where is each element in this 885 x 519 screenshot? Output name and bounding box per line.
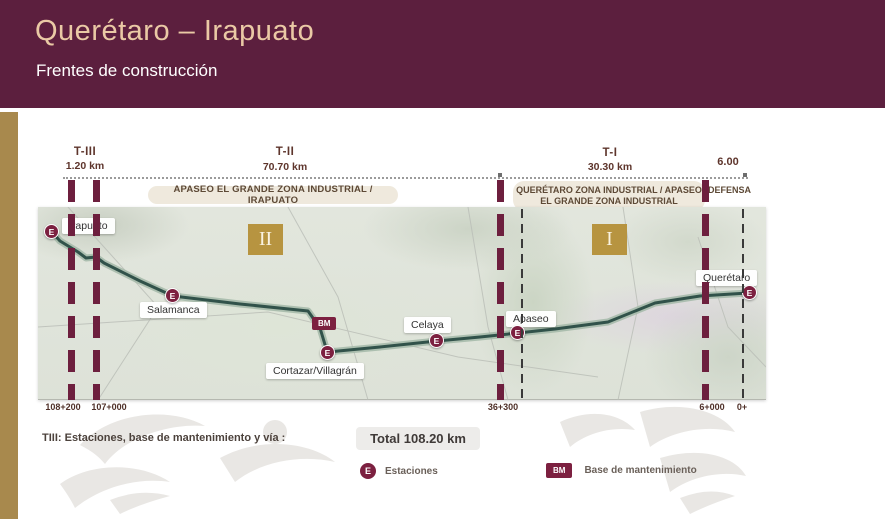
station-label-salamanca: Salamanca	[140, 302, 207, 318]
station-marker-celaya: E	[429, 333, 444, 348]
zone-label-text: QUERÉTARO ZONA INDUSTRIAL / APASEO	[513, 185, 705, 196]
station-marker-salamanca: E	[165, 288, 180, 303]
page-title: Querétaro – Irapuato	[35, 15, 314, 48]
zone-label-apaseo-irapuato: APASEO EL GRANDE ZONA INDUSTRIAL / IRAPU…	[148, 186, 398, 204]
station-label-cortazar: Cortazar/Villagrán	[266, 363, 364, 379]
section-t3-length: 1.20 km	[55, 160, 115, 172]
station-label-apaseo: Apaseo	[506, 311, 556, 327]
zone-label-text: EL GRANDE ZONA INDUSTRIAL	[513, 196, 705, 207]
station-marker-cortazar: E	[320, 345, 335, 360]
legend-label: Estaciones	[385, 466, 438, 477]
km-marker: 108+200	[38, 402, 88, 412]
section-boundary-dot	[498, 173, 502, 177]
legend-label: Base de mantenimiento	[584, 465, 696, 476]
section-t1-label: T-I	[570, 147, 650, 159]
zone-label-text: APASEO EL GRANDE ZONA INDUSTRIAL / IRAPU…	[148, 184, 398, 206]
maintenance-base-badge: BM	[312, 317, 336, 330]
legend-base-mantenimiento: BM Base de mantenimiento	[546, 463, 697, 478]
section-t2-label: T-II	[245, 146, 325, 158]
km-marker: 107+000	[84, 402, 134, 412]
header-banner: Querétaro – Irapuato Frentes de construc…	[0, 0, 885, 108]
legend-estaciones: E Estaciones	[360, 463, 438, 479]
station-label-celaya: Celaya	[404, 317, 451, 333]
rail-route-halo	[52, 232, 748, 352]
zone-boundary-dashed-line	[521, 209, 523, 400]
km-marker: 0+	[727, 402, 757, 412]
route-map: Irapuato Salamanca Cortazar/Villagrán Ce…	[38, 207, 766, 400]
slide: Querétaro – Irapuato Frentes de construc…	[0, 0, 885, 519]
total-length-badge: Total 108.20 km	[356, 427, 480, 450]
maintenance-legend-icon: BM	[546, 463, 572, 478]
section-dotted-line	[63, 177, 748, 179]
station-marker-queretaro: E	[742, 285, 757, 300]
divider-km-107-000	[93, 180, 100, 400]
front-badge-1: I	[592, 224, 627, 255]
section-t2-length: 70.70 km	[245, 161, 325, 173]
km-marker: 36+300	[478, 402, 528, 412]
page-subtitle: Frentes de construcción	[36, 61, 217, 81]
section-boundary-dot	[743, 173, 747, 177]
zone-boundary-dashed-line	[742, 209, 744, 400]
defensa-label: DEFENSA	[708, 185, 752, 195]
station-marker-irapuato: E	[44, 224, 59, 239]
divider-km-6-000	[702, 180, 709, 400]
station-legend-icon: E	[360, 463, 376, 479]
section-t3-label: T-III	[55, 146, 115, 158]
gold-accent-bar	[0, 112, 18, 519]
section-t1-length: 30.30 km	[570, 161, 650, 173]
section-defensa-length: 6.00	[705, 156, 751, 168]
divider-km-108-200	[68, 180, 75, 400]
watermark-pattern	[20, 400, 750, 515]
front-badge-2: II	[248, 224, 283, 255]
footer-note: TIII: Estaciones, base de mantenimiento …	[42, 432, 285, 444]
divider-km-36-300	[497, 180, 504, 400]
